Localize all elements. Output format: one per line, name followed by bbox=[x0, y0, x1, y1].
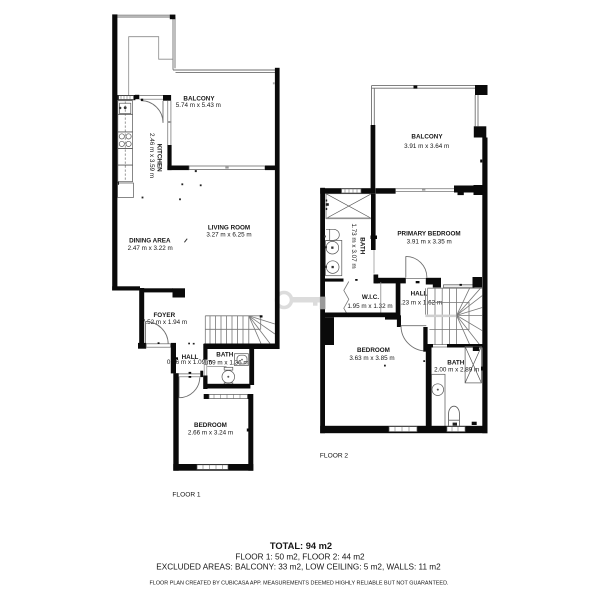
svg-text:TOTAL: 94 m2: TOTAL: 94 m2 bbox=[270, 541, 332, 551]
svg-text:FLOOR PLAN CREATED BY CUBICASA: FLOOR PLAN CREATED BY CUBICASA APP. MEAS… bbox=[149, 580, 449, 586]
svg-text:BEDROOM: BEDROOM bbox=[357, 347, 390, 354]
svg-text:BALCONY: BALCONY bbox=[411, 134, 443, 141]
svg-text:5.74 m x 5.43 m: 5.74 m x 5.43 m bbox=[176, 102, 221, 109]
svg-text:1.95 m x 1.32 m: 1.95 m x 1.32 m bbox=[347, 303, 392, 310]
svg-text:FLOOR 2: FLOOR 2 bbox=[320, 452, 349, 459]
svg-text:3.91 m x 3.35 m: 3.91 m x 3.35 m bbox=[407, 239, 452, 246]
svg-text:2.00 m x 2.89 m: 2.00 m x 2.89 m bbox=[434, 367, 479, 374]
svg-text:3.63 m x 3.85 m: 3.63 m x 3.85 m bbox=[349, 355, 394, 362]
svg-text:W.I.C.: W.I.C. bbox=[362, 294, 379, 301]
svg-text:PRIMARY BEDROOM: PRIMARY BEDROOM bbox=[397, 230, 460, 237]
svg-text:BEDROOM: BEDROOM bbox=[194, 422, 227, 429]
svg-text:EXCLUDED AREAS: BALCONY: 33 m2: EXCLUDED AREAS: BALCONY: 33 m2, LOW CEIL… bbox=[156, 562, 441, 571]
svg-text:2.66 m x 3.24 m: 2.66 m x 3.24 m bbox=[188, 430, 233, 437]
svg-text:LIVING ROOM: LIVING ROOM bbox=[208, 224, 250, 231]
svg-text:HALL: HALL bbox=[411, 291, 428, 298]
svg-text:KITCHEN: KITCHEN bbox=[155, 144, 162, 172]
svg-text:3.91 m x 3.64 m: 3.91 m x 3.64 m bbox=[404, 143, 449, 150]
svg-text:FLOOR 1: 50 m2, FLOOR 2: 44 m2: FLOOR 1: 50 m2, FLOOR 2: 44 m2 bbox=[235, 553, 365, 562]
svg-text:FLOOR 1: FLOOR 1 bbox=[172, 492, 201, 499]
svg-text:2.46 m x 3.59 m: 2.46 m x 3.59 m bbox=[148, 133, 155, 178]
svg-text:BATH: BATH bbox=[359, 237, 366, 254]
svg-text:1.73 m x 3.07 m: 1.73 m x 3.07 m bbox=[350, 223, 357, 268]
svg-text:FOYER: FOYER bbox=[153, 312, 175, 319]
svg-text:BATH: BATH bbox=[447, 360, 464, 367]
svg-text:3.27 m x 6.25 m: 3.27 m x 6.25 m bbox=[206, 231, 251, 238]
svg-text:2.47 m x 3.22 m: 2.47 m x 3.22 m bbox=[128, 245, 173, 252]
svg-text:DINING AREA: DINING AREA bbox=[129, 238, 171, 245]
svg-text:BATH: BATH bbox=[216, 351, 233, 358]
svg-text:7.52 m x 1.94 m: 7.52 m x 1.94 m bbox=[142, 319, 187, 326]
